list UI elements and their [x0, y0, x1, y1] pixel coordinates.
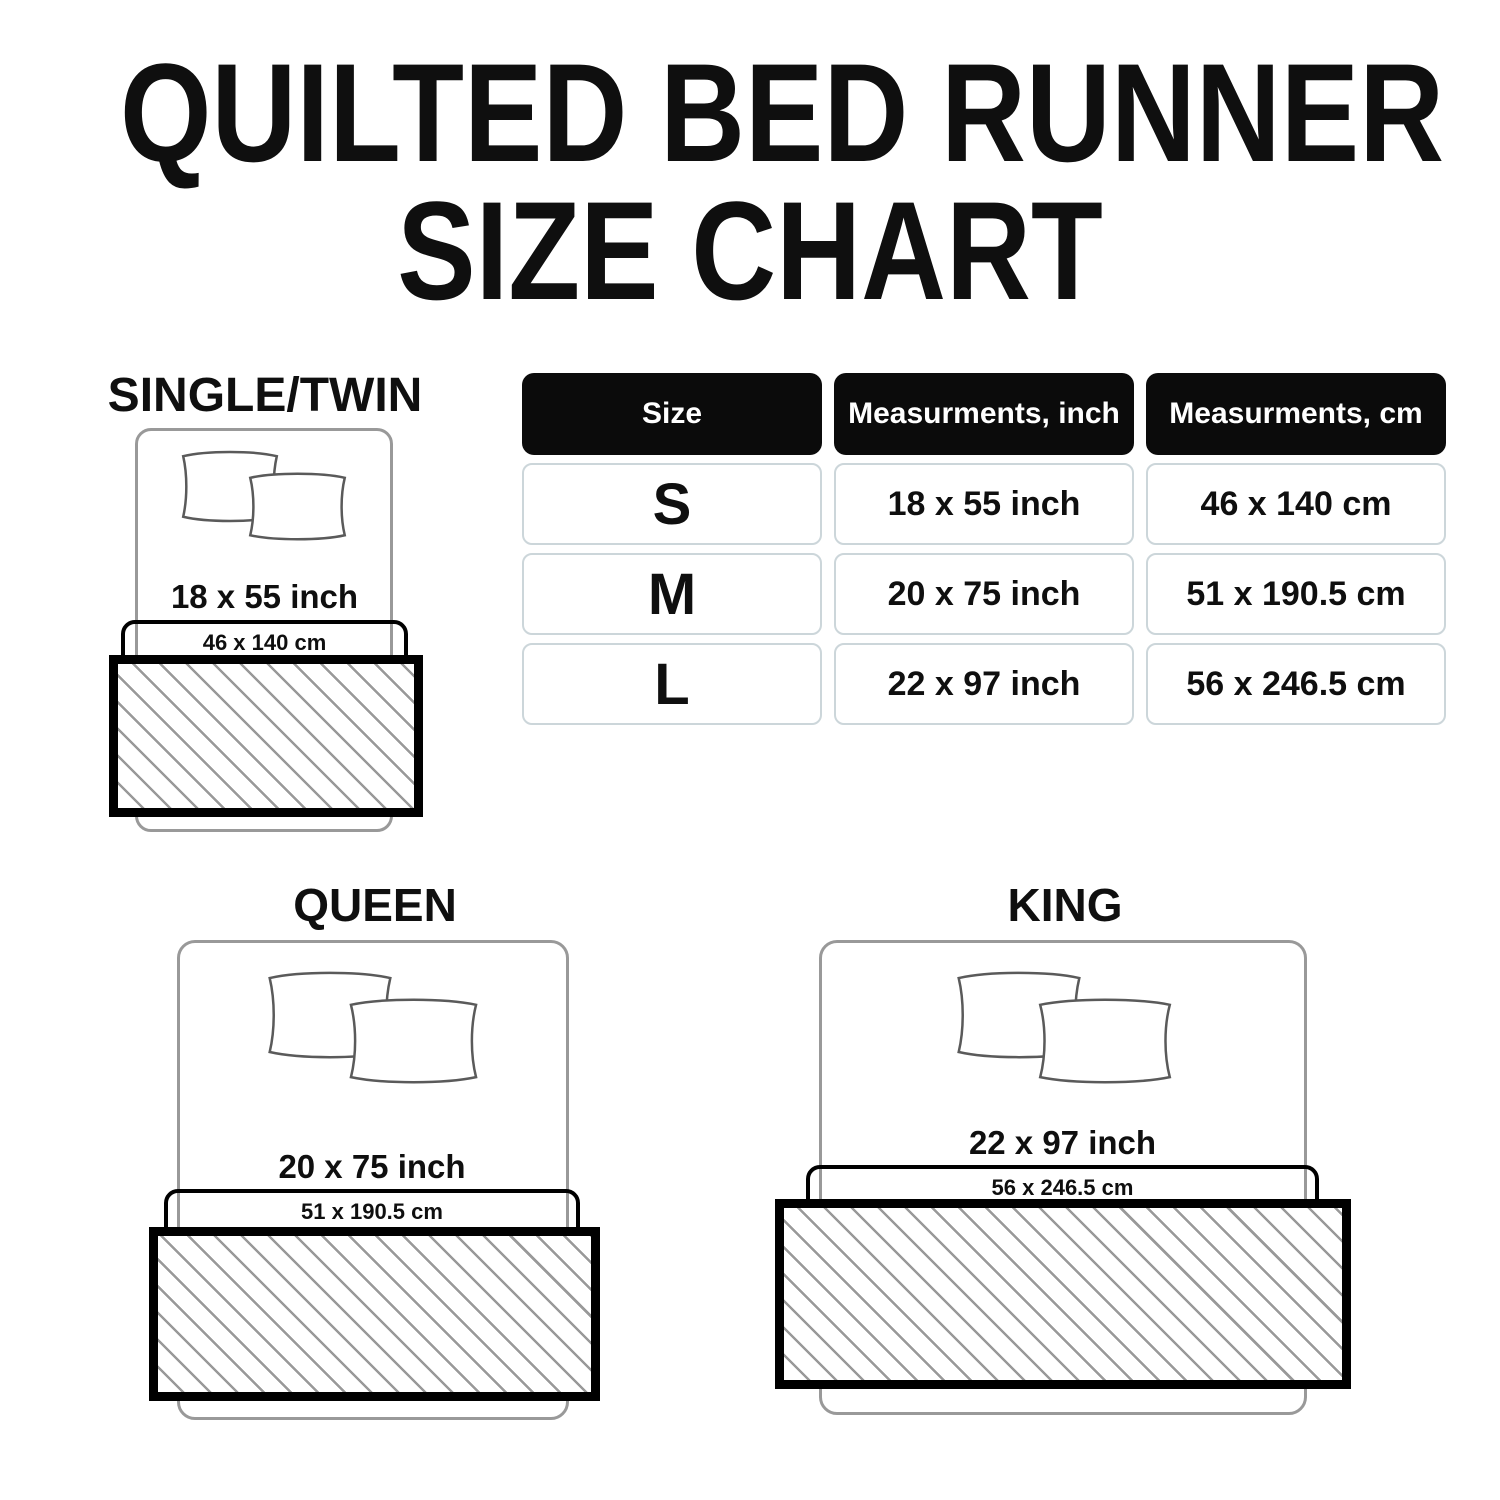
king-label: KING [800, 878, 1330, 932]
pillow-icon [250, 474, 345, 540]
pillow-icon [1040, 1000, 1170, 1082]
queen-cm-size: 51 x 190.5 cm [168, 1193, 576, 1225]
page-title: QUILTED BED RUNNER SIZE CHART [120, 44, 1380, 320]
single-pillows-icon [170, 440, 360, 555]
king-cm-size: 56 x 246.5 cm [810, 1169, 1315, 1201]
table-header-cm: Measurments, cm [1146, 373, 1446, 455]
size-chart-infographic: QUILTED BED RUNNER SIZE CHART Size Measu… [0, 0, 1500, 1500]
table-cell-cm-s: 46 x 140 cm [1146, 463, 1446, 545]
pillow-icon [351, 1000, 476, 1082]
queen-runner-hatched [149, 1227, 600, 1401]
table-cell-inch-s: 18 x 55 inch [834, 463, 1134, 545]
table-cell-cm-m: 51 x 190.5 cm [1146, 553, 1446, 635]
single-runner-hatched [109, 655, 423, 817]
table-cell-inch-m: 20 x 75 inch [834, 553, 1134, 635]
size-table: Size Measurments, inch Measurments, cm S… [522, 373, 1446, 725]
table-cell-size-l: L [522, 643, 822, 725]
queen-pillows-icon [250, 960, 490, 1095]
table-header-size: Size [522, 373, 822, 455]
table-cell-size-m: M [522, 553, 822, 635]
single-cm-size: 46 x 140 cm [125, 624, 404, 656]
single-twin-label: SINGLE/TWIN [100, 368, 430, 423]
page-title-line1: QUILTED BED RUNNER [120, 44, 1380, 182]
queen-inch-size: 20 x 75 inch [164, 1148, 580, 1186]
table-cell-inch-l: 22 x 97 inch [834, 643, 1134, 725]
king-inch-size: 22 x 97 inch [806, 1124, 1319, 1162]
table-cell-cm-l: 56 x 246.5 cm [1146, 643, 1446, 725]
king-pillows-icon [940, 960, 1185, 1095]
table-header-inch: Measurments, inch [834, 373, 1134, 455]
queen-label: QUEEN [150, 878, 600, 932]
table-cell-size-s: S [522, 463, 822, 545]
page-title-line2: SIZE CHART [120, 182, 1380, 320]
single-inch-size: 18 x 55 inch [121, 578, 408, 616]
king-runner-hatched [775, 1199, 1351, 1389]
